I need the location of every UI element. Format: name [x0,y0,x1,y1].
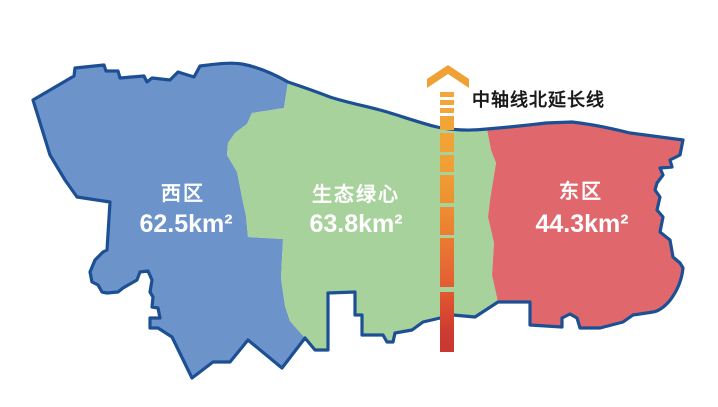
axis-north-arrow-icon [427,65,469,88]
axis-label: 中轴线北延长线 [472,89,605,110]
east-region-area: 44.3km² [535,210,628,238]
green-heart-region-name: 生态绿心 [312,182,400,206]
east-region-name: 东区 [559,179,603,203]
green-heart-region-area: 63.8km² [309,210,402,238]
planning-map-svg: 中轴线北延长线 西区 62.5km² 生态绿心 63.8km² 东区 44.3k… [0,0,718,407]
west-region-area: 62.5km² [139,210,232,238]
planning-map-canvas: 中轴线北延长线 西区 62.5km² 生态绿心 63.8km² 东区 44.3k… [0,0,718,407]
west-region-name: 西区 [161,183,205,205]
